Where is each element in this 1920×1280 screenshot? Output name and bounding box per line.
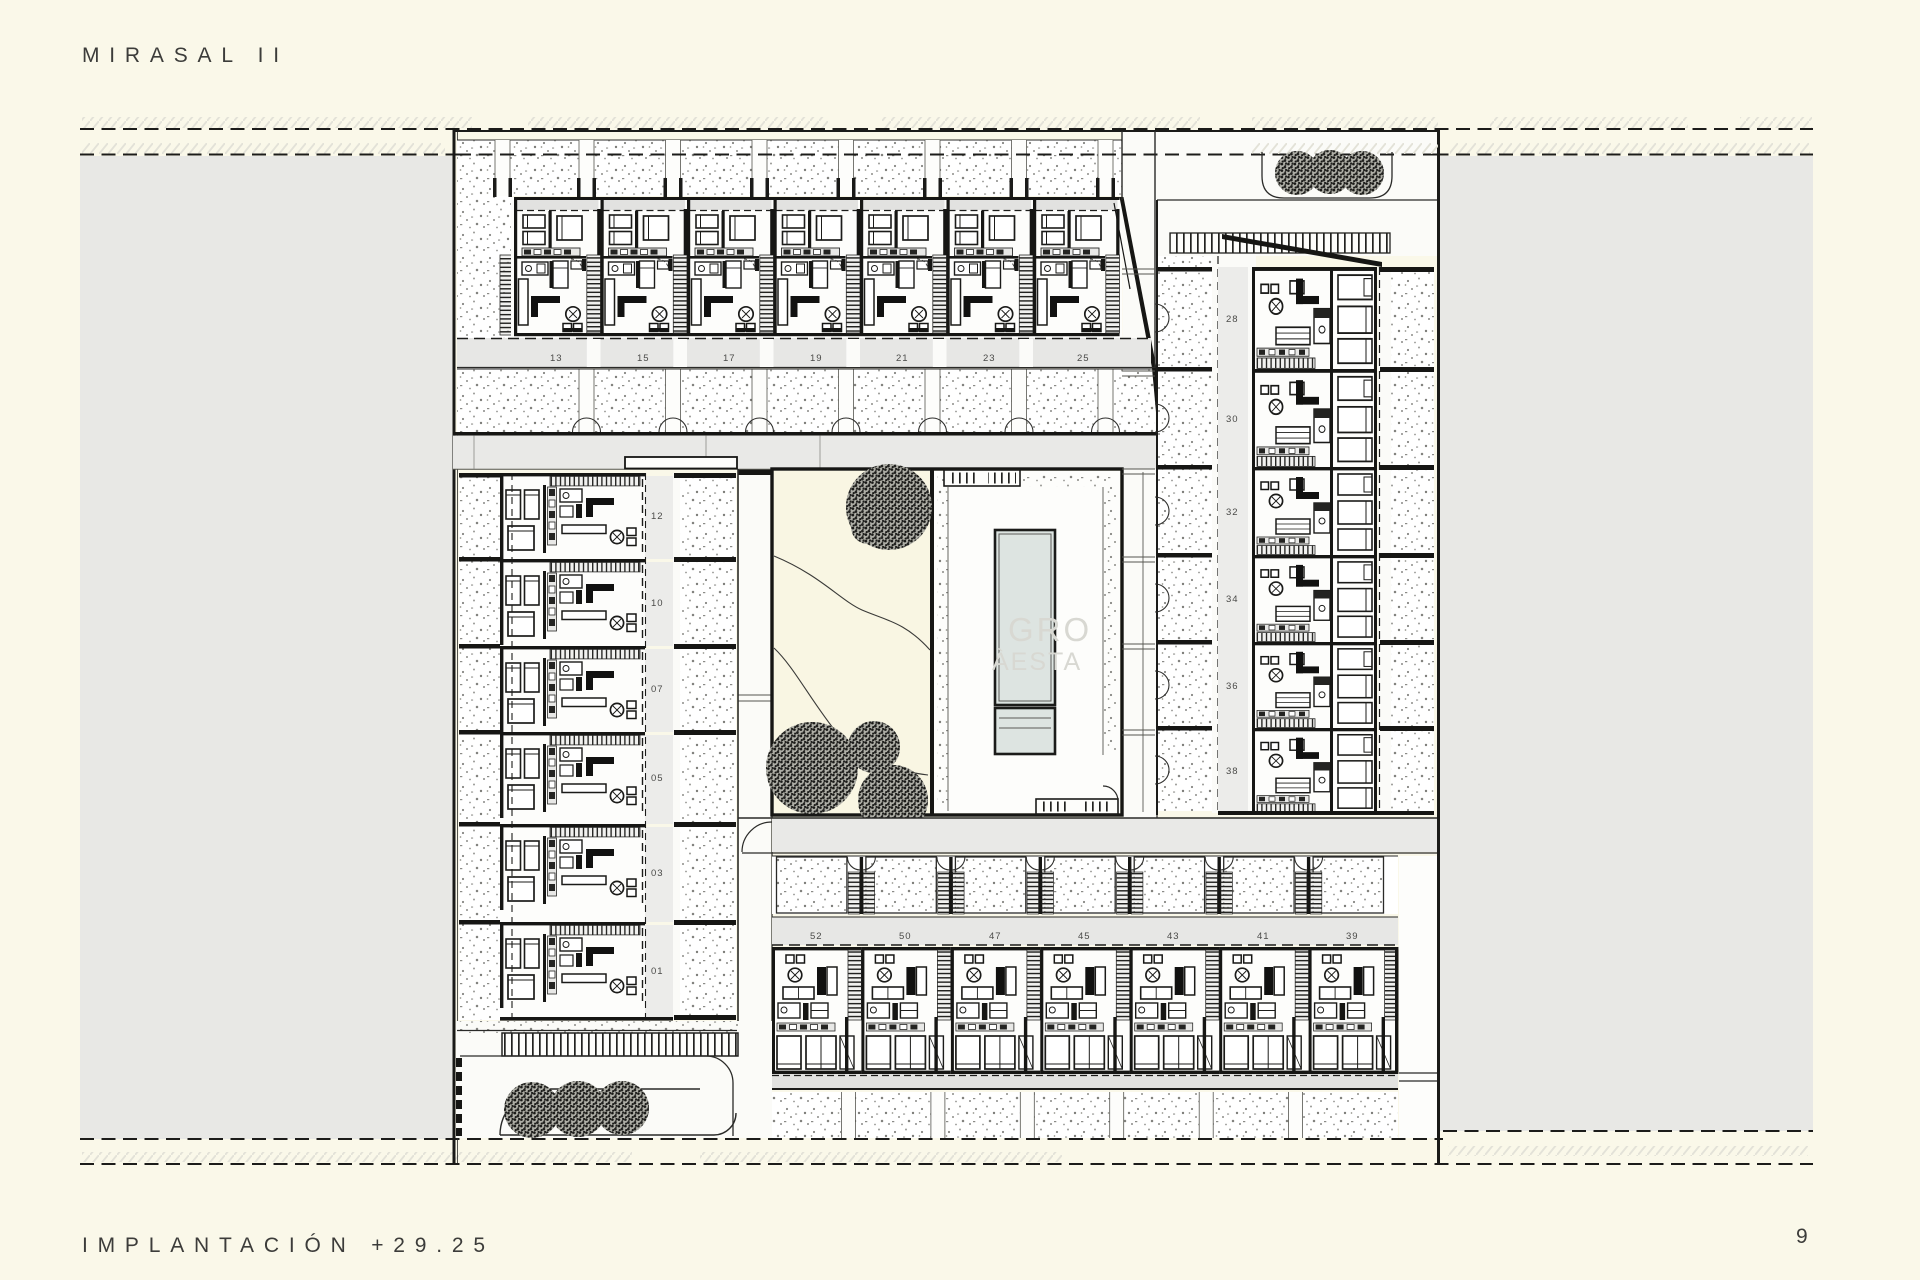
svg-text:28: 28 [1226,314,1239,325]
svg-text:41: 41 [1257,931,1270,942]
svg-text:39: 39 [1346,931,1359,942]
svg-text:12: 12 [651,511,664,522]
svg-text:52: 52 [810,931,823,942]
svg-text:17: 17 [723,353,736,364]
svg-text:30: 30 [1226,414,1239,425]
svg-text:19: 19 [810,353,823,364]
svg-text:21: 21 [896,353,909,364]
svg-text:23: 23 [983,353,996,364]
svg-text:07: 07 [651,684,664,695]
svg-text:03: 03 [651,868,664,879]
svg-text:05: 05 [651,773,664,784]
svg-text:01: 01 [651,966,664,977]
svg-text:45: 45 [1078,931,1091,942]
svg-text:25: 25 [1077,353,1090,364]
svg-text:15: 15 [637,353,650,364]
svg-text:32: 32 [1226,507,1239,518]
svg-text:36: 36 [1226,681,1239,692]
svg-text:34: 34 [1226,594,1239,605]
svg-text:13: 13 [550,353,563,364]
svg-text:IMPLANTACIÓN +29.25: IMPLANTACIÓN +29.25 [82,1234,495,1257]
svg-text:9: 9 [1796,1225,1808,1248]
svg-text:10: 10 [651,598,664,609]
svg-text:MIRASAL II: MIRASAL II [82,44,289,67]
svg-text:47: 47 [989,931,1002,942]
svg-text:43: 43 [1167,931,1180,942]
svg-text:38: 38 [1226,766,1239,777]
svg-text:GRO: GRO [1008,611,1092,648]
svg-text:ÀESTA: ÀESTA [992,647,1082,676]
svg-text:50: 50 [899,931,912,942]
